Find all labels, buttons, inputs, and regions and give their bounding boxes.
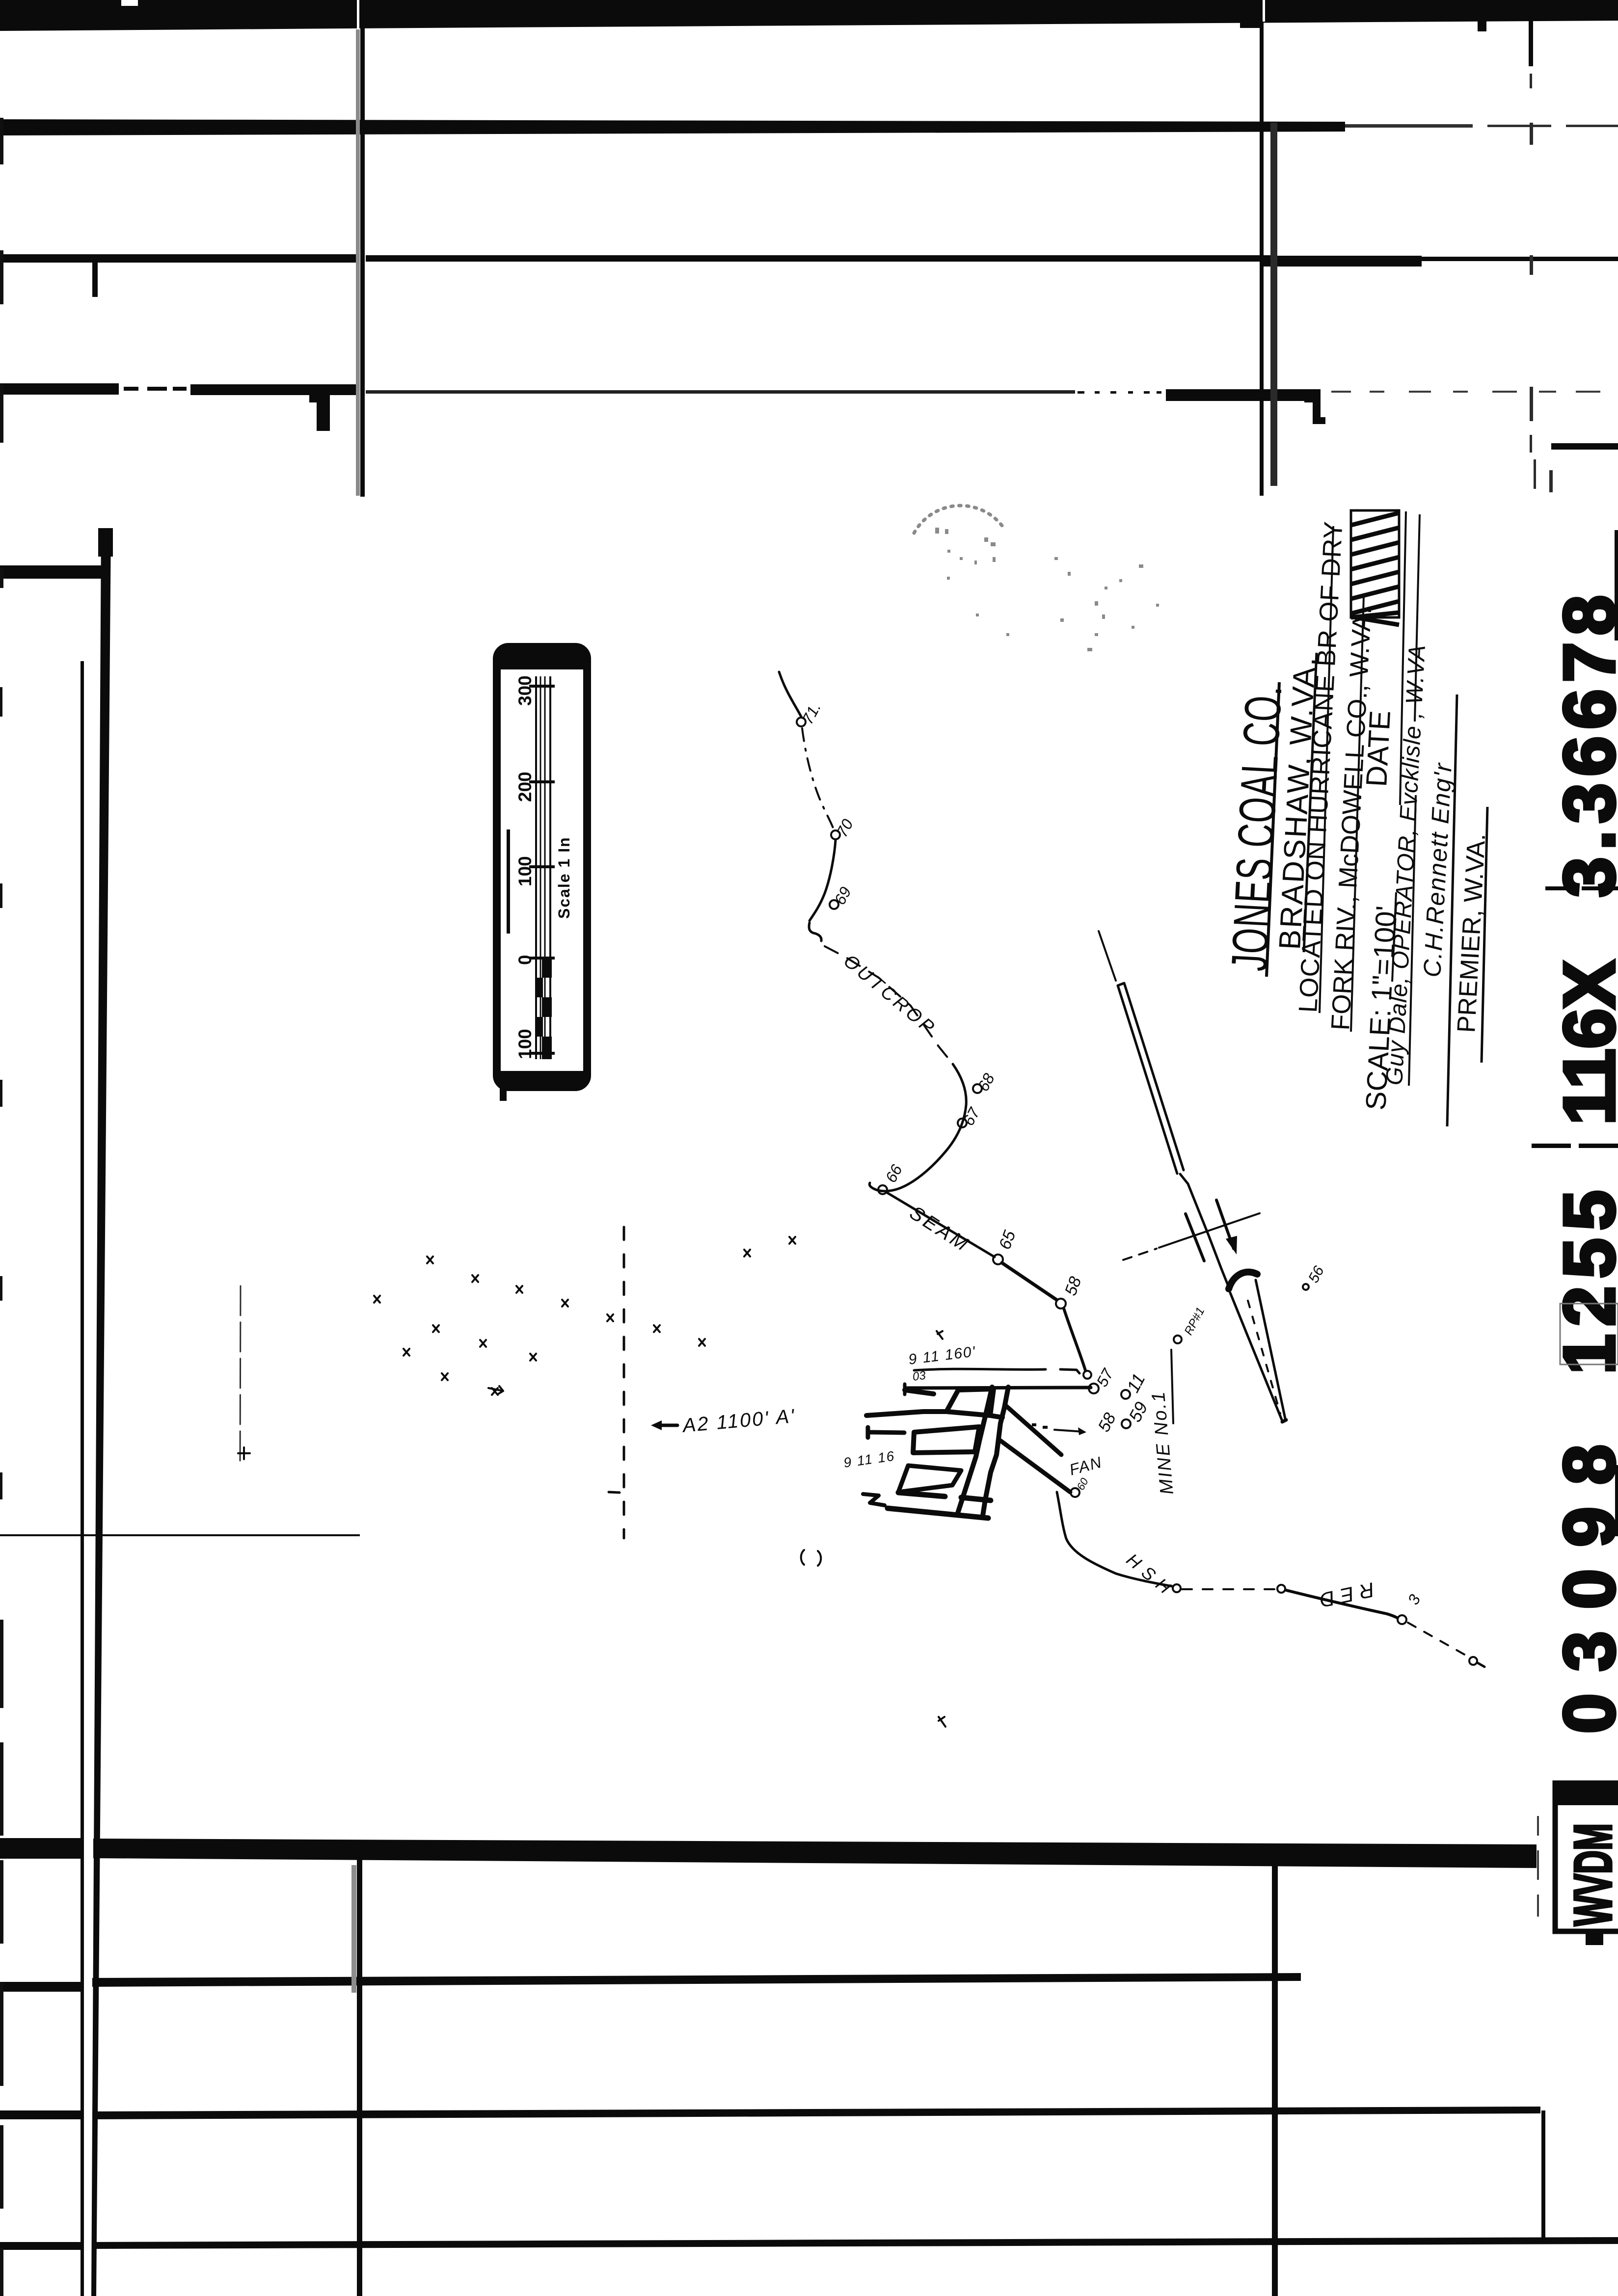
svg-text:03098: 03098	[1549, 1422, 1618, 1734]
svg-text:0: 0	[515, 955, 535, 965]
svg-text:WVDM: WVDM	[1563, 1823, 1618, 1926]
svg-text:100: 100	[515, 856, 535, 886]
svg-text:100: 100	[515, 1029, 535, 1059]
svg-text:200: 200	[515, 772, 535, 802]
svg-text:03: 03	[912, 1369, 926, 1384]
svg-text:116X: 116X	[1549, 961, 1618, 1125]
svg-text:3.36678: 3.36678	[1549, 588, 1618, 897]
svg-text:300: 300	[515, 675, 535, 706]
svg-text:Scale 1 In: Scale 1 In	[555, 836, 573, 919]
svg-text:DATE: DATE	[1360, 710, 1397, 788]
